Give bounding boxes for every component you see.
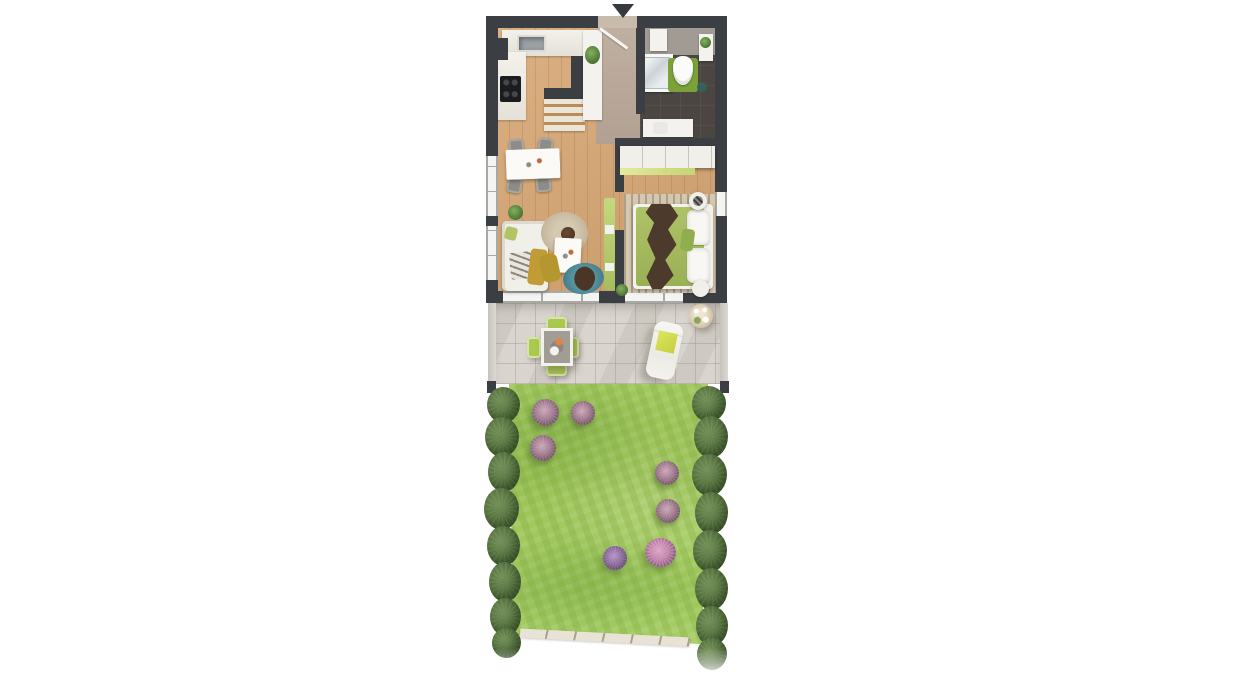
hedge-right-2 <box>694 416 728 458</box>
bedroom-plant <box>616 284 628 296</box>
bath-vanity <box>643 119 693 137</box>
kitchen-plant <box>585 46 600 64</box>
window-right-bedroom <box>715 192 727 216</box>
flower-bush-5 <box>656 499 680 523</box>
window-left-lower <box>486 226 498 280</box>
bottom-white-fade <box>478 648 740 690</box>
wall-hall-bathroom <box>636 24 645 114</box>
nightstand-1-deco <box>693 196 703 206</box>
flower-bush-4 <box>655 461 679 485</box>
bed-pillow-2 <box>687 248 710 283</box>
wardrobe <box>620 146 715 168</box>
bath-panel <box>650 29 667 51</box>
window-left-upper <box>486 156 498 216</box>
wardrobe-accent <box>620 168 695 175</box>
flower-bush-2 <box>571 401 595 425</box>
nightstand-2 <box>692 280 709 297</box>
kitchen-tall-cabinet <box>583 30 602 120</box>
tv-sideboard-shelf-2 <box>605 263 614 271</box>
flower-bush-7 <box>645 538 676 567</box>
wall-top-right <box>637 16 727 28</box>
patio-table <box>541 328 573 366</box>
patio-chair-left <box>527 337 541 358</box>
hedge-right-5 <box>693 530 727 572</box>
lounger-towel <box>655 330 678 354</box>
bath-shelf-plant <box>700 37 711 48</box>
wall-top-left <box>486 16 598 28</box>
terrace-potted-plant <box>689 304 713 328</box>
hedge-left-3 <box>488 452 520 492</box>
tv-sideboard-shelf-1 <box>605 225 614 234</box>
hedge-left-6 <box>489 562 521 602</box>
kitchen-sink <box>517 35 546 52</box>
hedge-right-6 <box>695 568 728 610</box>
flower-bush-6 <box>603 546 627 570</box>
hedge-left-4 <box>484 488 519 530</box>
bath-basin <box>653 122 668 134</box>
wall-corner-notch <box>486 38 508 60</box>
wall-right <box>715 16 727 303</box>
entrance-arrow <box>612 4 634 18</box>
terrace-fence-left <box>488 303 496 382</box>
bath-bin <box>697 82 707 92</box>
hedge-right-3 <box>692 454 727 496</box>
dining-table <box>505 148 560 180</box>
hedge-right-4 <box>695 492 728 534</box>
terrace-fence-right <box>720 303 728 382</box>
floorplan-canvas <box>0 0 1236 700</box>
wall-bottom-left <box>486 291 503 303</box>
hedge-left-2 <box>485 417 519 457</box>
kitchen-cooktop <box>500 76 521 102</box>
flower-bush-3 <box>530 435 556 461</box>
kitchen-sideboard <box>544 99 585 131</box>
tv-sideboard <box>604 198 615 290</box>
kitchen-halfwall-h <box>544 88 583 99</box>
hedge-left-5 <box>487 526 520 566</box>
wall-divider-lower <box>615 230 624 291</box>
flower-bush-1 <box>532 399 559 426</box>
living-plant <box>508 205 523 220</box>
